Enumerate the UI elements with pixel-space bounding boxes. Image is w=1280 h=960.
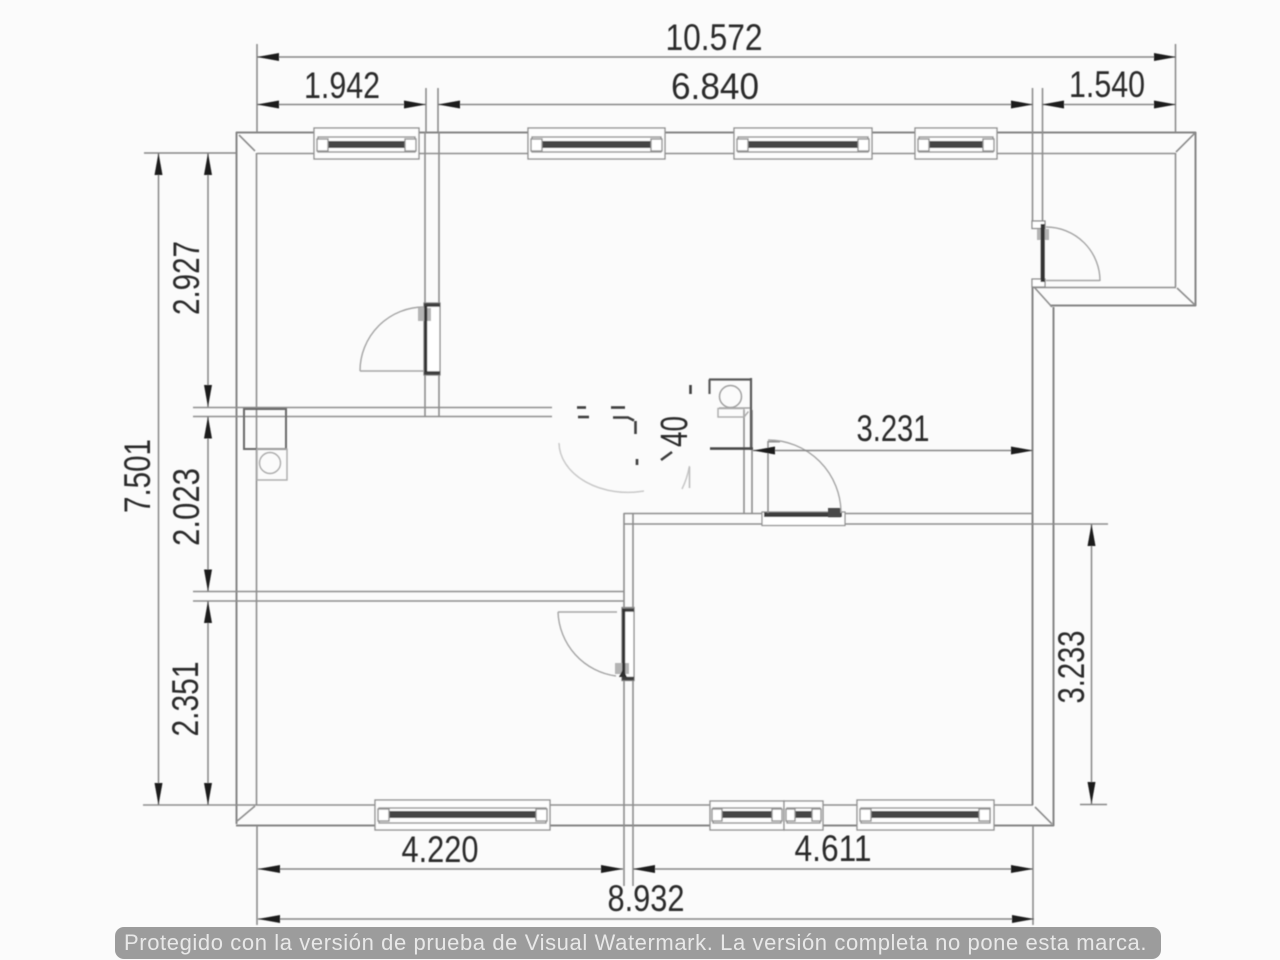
svg-text:4.611: 4.611 <box>795 828 872 869</box>
svg-text:4.220: 4.220 <box>402 829 479 870</box>
svg-text:2.351: 2.351 <box>165 662 206 737</box>
svg-text:Protegido con la versión de pr: Protegido con la versión de prueba de Vi… <box>124 930 1147 955</box>
svg-text:3.231: 3.231 <box>857 408 930 449</box>
svg-text:10.572: 10.572 <box>666 17 763 58</box>
svg-text:3.233: 3.233 <box>1051 631 1092 704</box>
svg-text:2.023: 2.023 <box>166 468 207 546</box>
svg-text:2.927: 2.927 <box>166 241 207 315</box>
svg-text:6.840: 6.840 <box>671 66 759 107</box>
svg-text:1.942: 1.942 <box>304 65 380 106</box>
svg-text:1.540: 1.540 <box>1069 64 1145 105</box>
svg-text:7.501: 7.501 <box>117 439 158 513</box>
svg-text:8.932: 8.932 <box>608 878 685 919</box>
svg-text:40: 40 <box>654 416 696 447</box>
